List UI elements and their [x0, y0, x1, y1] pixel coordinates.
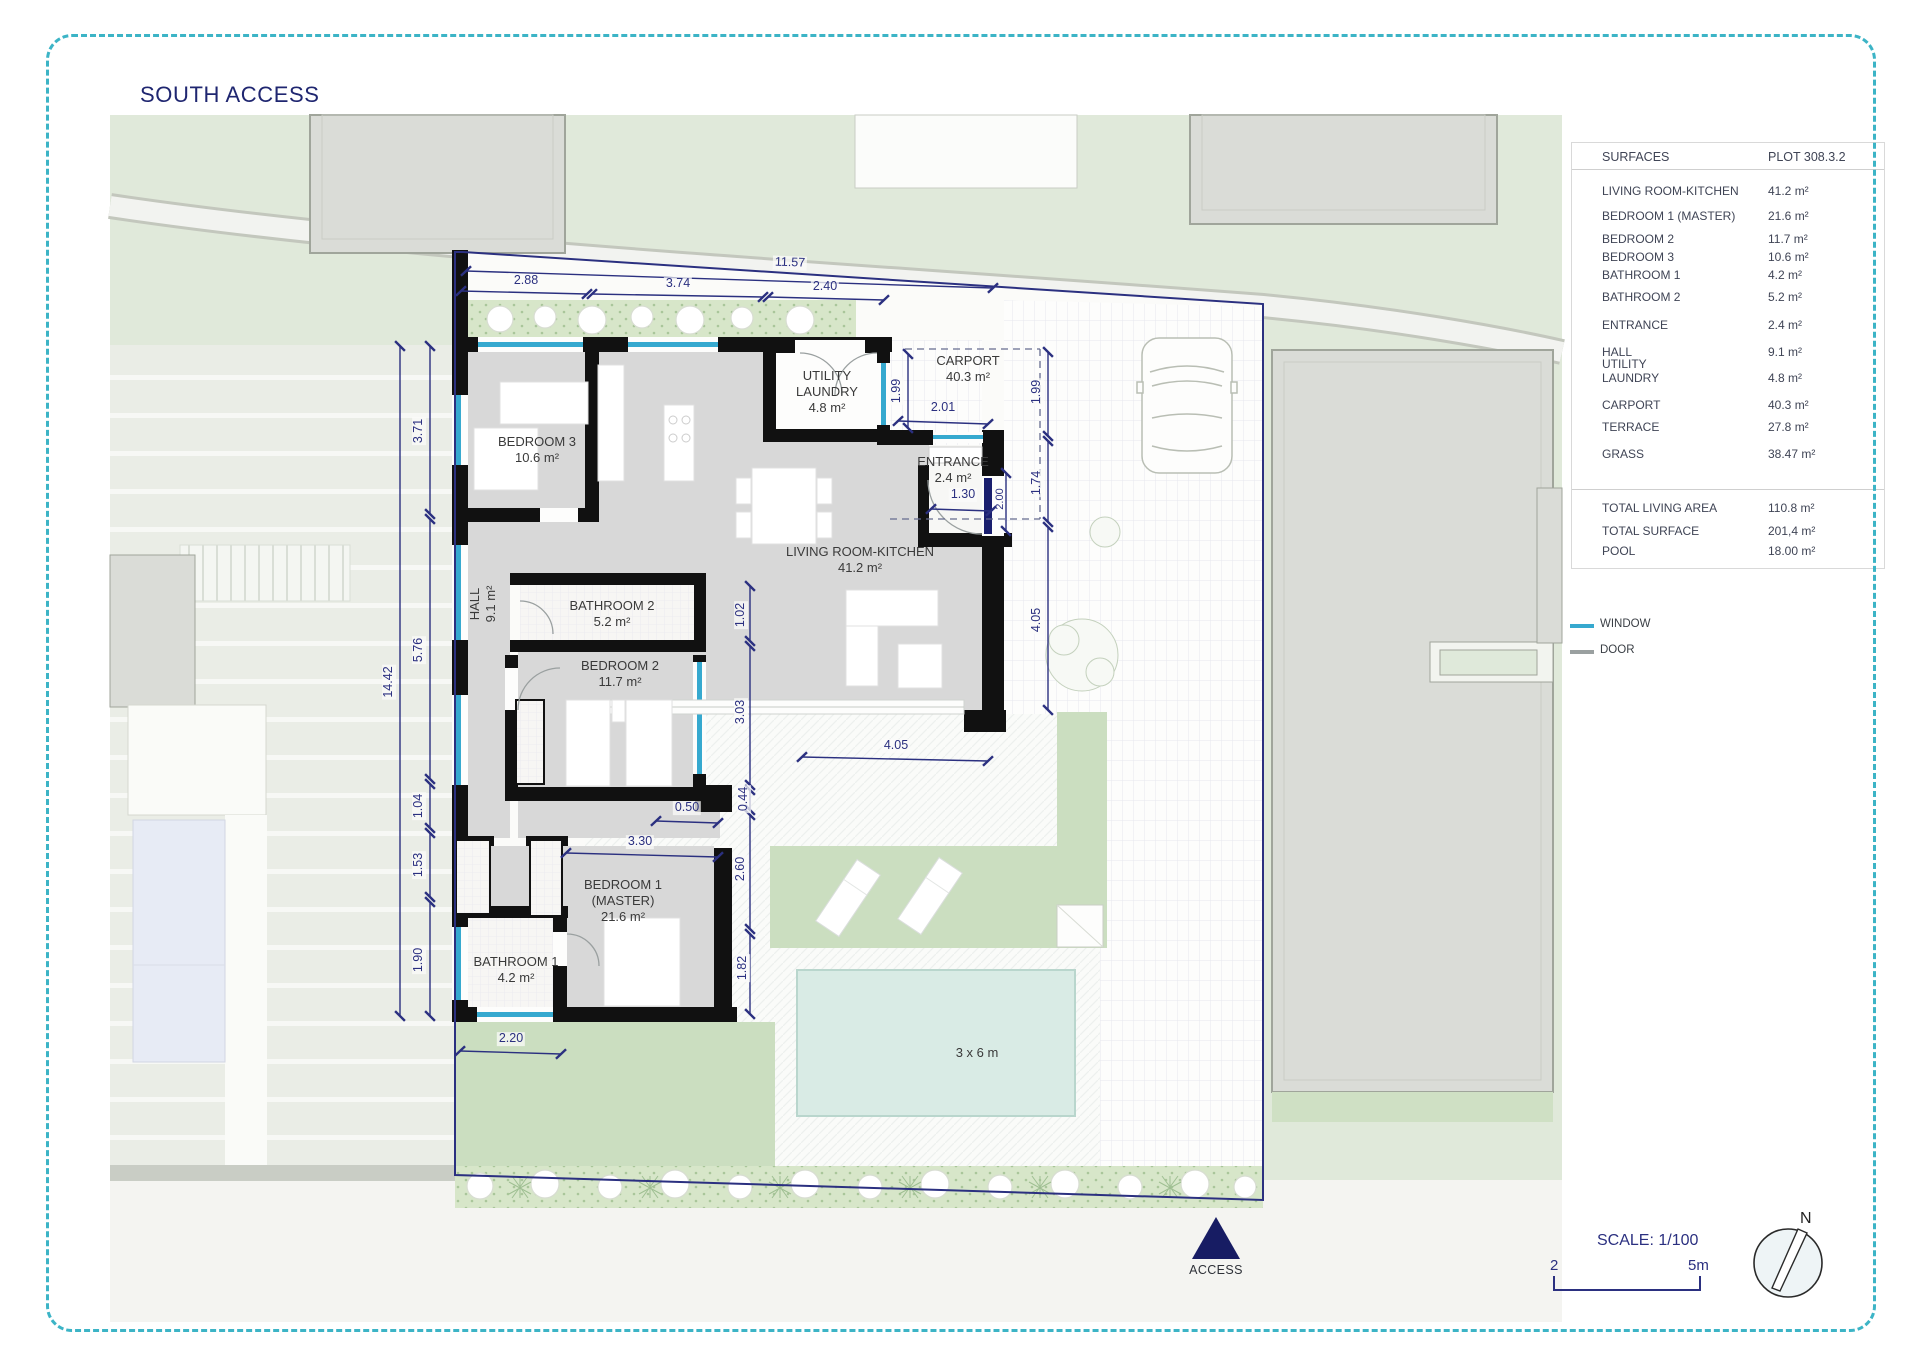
dim-top-1: 2.88	[512, 274, 540, 288]
neighbor-building-topmid	[855, 115, 1077, 188]
table-row: BEDROOM 1 (MASTER)21.6 m²	[1572, 209, 1884, 225]
floor-plan-page: SOUTH ACCESS BEDROOM 310.6 m² UTILITY LA…	[0, 0, 1920, 1357]
room-label-hall: HALL9.1 m²	[467, 586, 499, 623]
access-label: ACCESS	[1186, 1263, 1246, 1277]
garden-box	[1057, 905, 1103, 947]
room-label-bedroom1: BEDROOM 1 (MASTER)21.6 m²	[584, 877, 662, 925]
room-label-bathroom2: BATHROOM 25.2 m²	[570, 598, 655, 630]
room-label-entrance: ENTRANCE2.4 m²	[917, 454, 989, 486]
room-label-bedroom3: BEDROOM 310.6 m²	[498, 434, 576, 466]
table-row: BEDROOM 310.6 m²	[1572, 250, 1884, 266]
surfaces-table: SURFACES PLOT 308.3.2 LIVING ROOM-KITCHE…	[1571, 142, 1885, 569]
pool-label: 3 x 6 m	[956, 1045, 999, 1061]
surfaces-table-header: SURFACES PLOT 308.3.2	[1572, 143, 1884, 170]
dim-right-174: 1.74	[1030, 469, 1044, 497]
dim-entrance-door: 2.00	[994, 486, 1006, 511]
table-separator	[1572, 489, 1884, 490]
compass	[1754, 1229, 1822, 1297]
table-row: BEDROOM 211.7 m²	[1572, 232, 1884, 248]
room-label-carport: CARPORT40.3 m²	[936, 353, 999, 385]
north-label: N	[1800, 1210, 1812, 1228]
dim-left-5: 1.90	[412, 946, 426, 974]
table-row: UTILITY LAUNDRY4.8 m²	[1572, 357, 1884, 387]
room-label-living: LIVING ROOM-KITCHEN41.2 m²	[786, 544, 934, 576]
dim-inner-260: 2.60	[734, 855, 748, 883]
pool	[797, 970, 1075, 1116]
dim-left-4: 1.53	[412, 851, 426, 879]
neighbor-building-topright	[1190, 115, 1497, 224]
room-label-bathroom1: BATHROOM 14.2 m²	[474, 954, 559, 986]
scale-start: 2	[1550, 1257, 1558, 1274]
dim-carport-right: 1.99	[1030, 378, 1044, 406]
dim-left-3: 1.04	[412, 792, 426, 820]
surfaces-title: SURFACES	[1602, 150, 1669, 164]
dim-right-405: 4.05	[1030, 606, 1044, 634]
right-neighbor-building	[1272, 350, 1562, 1122]
door-legend-label: DOOR	[1600, 644, 1635, 656]
dim-bottom-220: 2.20	[497, 1032, 525, 1046]
table-total-row: TOTAL SURFACE201,4 m²	[1572, 524, 1884, 540]
table-total-row: POOL18.00 m²	[1572, 544, 1884, 560]
dim-top-3: 2.40	[811, 280, 839, 294]
dim-inner-303: 3.03	[734, 698, 748, 726]
page-title: SOUTH ACCESS	[140, 82, 320, 108]
table-total-row: TOTAL LIVING AREA110.8 m²	[1572, 501, 1884, 517]
neighbor-pool	[133, 820, 225, 1062]
left-neighbor-plot	[110, 345, 455, 1181]
dim-top-overall: 11.57	[773, 256, 808, 271]
dim-bottom-050: 0.50	[673, 801, 701, 815]
table-row: GRASS38.47 m²	[1572, 447, 1884, 463]
planting-strip-top	[468, 300, 856, 340]
scale-end: 5m	[1688, 1257, 1709, 1274]
neighbor-building-topleft	[310, 115, 565, 253]
table-row: CARPORT40.3 m²	[1572, 398, 1884, 414]
dim-inner-182: 1.82	[736, 954, 750, 982]
dim-bottom-330: 3.30	[626, 835, 654, 849]
dim-carport-left: 1.99	[890, 377, 904, 405]
window-legend-swatch	[1570, 624, 1594, 628]
table-row: BATHROOM 25.2 m²	[1572, 290, 1884, 306]
dim-inner-102: 1.02	[734, 601, 748, 629]
dim-left-overall: 14.42	[382, 664, 396, 699]
table-row: TERRACE27.8 m²	[1572, 420, 1884, 436]
scale-bar	[1554, 1276, 1700, 1290]
table-row: ENTRANCE2.4 m²	[1572, 318, 1884, 334]
table-row: LIVING ROOM-KITCHEN41.2 m²	[1572, 184, 1884, 200]
door-legend-swatch	[1570, 650, 1594, 654]
entrance-door	[984, 478, 992, 534]
dim-left-1: 3.71	[412, 417, 426, 445]
dim-bottom-405: 4.05	[882, 739, 910, 753]
table-row: BATHROOM 14.2 m²	[1572, 268, 1884, 284]
dim-carport-mid: 2.01	[929, 401, 957, 415]
dim-left-2: 5.76	[412, 636, 426, 664]
room-label-bedroom2: BEDROOM 211.7 m²	[581, 658, 659, 690]
scale-label: SCALE: 1/100	[1597, 1232, 1698, 1250]
dim-entrance-130: 1.30	[949, 488, 977, 502]
car	[1137, 338, 1237, 473]
dim-top-2: 3.74	[664, 277, 692, 291]
room-label-utility: UTILITY LAUNDRY4.8 m²	[796, 368, 858, 416]
plot-number: PLOT 308.3.2	[1768, 150, 1846, 164]
dim-inner-044: 0.44	[737, 785, 751, 813]
window-legend-label: WINDOW	[1600, 618, 1650, 630]
